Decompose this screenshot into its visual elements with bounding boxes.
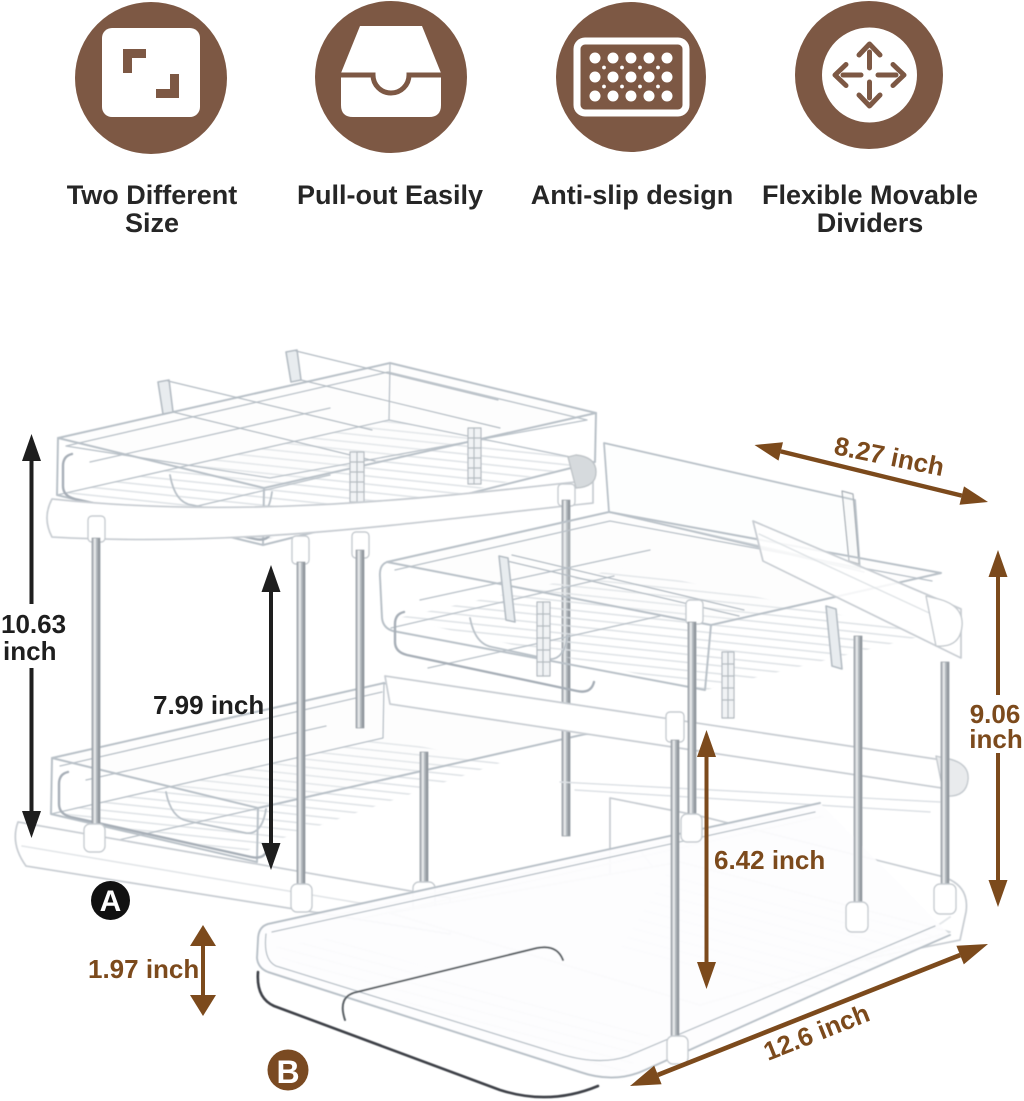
svg-text:inch: inch — [969, 724, 1022, 754]
svg-text:Pull-out Easily: Pull-out Easily — [297, 180, 483, 210]
svg-text:6.42 inch: 6.42 inch — [714, 845, 825, 875]
svg-text:A: A — [100, 885, 122, 918]
svg-text:Dividers: Dividers — [817, 208, 924, 238]
svg-text:Size: Size — [125, 208, 179, 238]
svg-text:inch: inch — [3, 636, 56, 666]
svg-text:Flexible Movable: Flexible Movable — [762, 180, 978, 210]
svg-text:7.99 inch: 7.99 inch — [153, 690, 264, 720]
svg-text:10.63: 10.63 — [1, 609, 66, 639]
svg-text:1.97 inch: 1.97 inch — [88, 954, 199, 984]
svg-text:B: B — [276, 1054, 299, 1090]
svg-text:8.27 inch: 8.27 inch — [832, 430, 947, 482]
svg-text:Anti-slip design: Anti-slip design — [531, 180, 734, 210]
svg-text:Two Different: Two Different — [67, 180, 238, 210]
